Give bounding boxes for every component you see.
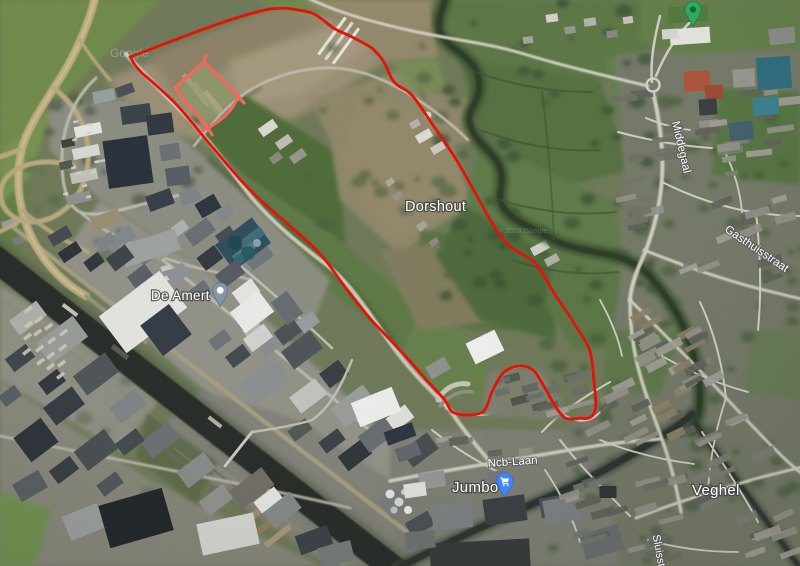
svg-text:Dorshout: Dorshout [405,199,466,215]
svg-text:Jumbo: Jumbo [452,479,499,496]
svg-text:De Amert: De Amert [151,288,210,303]
svg-text:Veghel: Veghel [692,482,740,499]
